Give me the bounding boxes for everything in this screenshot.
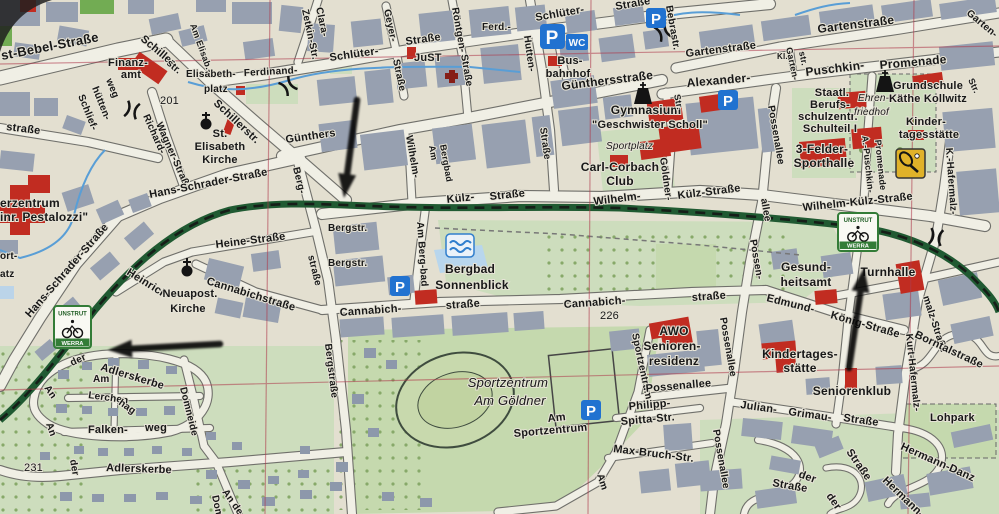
map-label: Turnhalle [861,265,916,279]
cycle-route-sign: UNSTRUT WERRA [838,213,878,251]
map-label: Gymnasium [611,103,682,117]
map-label: Carl-Corbach [581,160,659,174]
map-label: Bergbad [445,262,495,276]
map-label: Finanz- [108,57,148,69]
map-label: Sportzentrum [468,375,548,390]
map-label: JuST [414,52,442,64]
map-label: Ferd.- [482,22,511,33]
map-label: straße [691,290,726,304]
map-label: residenz [649,354,699,368]
map-label: 231 [24,462,43,474]
map-label: "Geschwister Scholl" [592,119,708,131]
map-label: Staatl. [815,87,849,99]
map-label: erzentrum [0,196,60,210]
map-label: Neuapost. [163,288,218,300]
map-label: Club [606,174,633,188]
svg-text:P: P [395,279,405,296]
map-label: Senioren- [643,339,700,353]
map-label: Kirche [170,303,205,315]
map-label: weg [144,422,167,434]
map-label: Bergstr. [328,258,367,269]
parking-icon: P [646,8,666,28]
map-label: heitsamt [781,275,832,289]
map-label: tagesstätte [899,129,959,141]
svg-text:P: P [723,93,733,110]
map-label: Gesund- [781,260,831,274]
map-label: 226 [600,310,619,322]
map-label: Ehren- [858,93,890,104]
map-label: Grundschule [893,80,963,92]
map-label: Bus- [557,55,582,67]
map-label: 201 [160,95,179,107]
church-icon [201,112,212,130]
map-label: AWO [659,324,688,338]
map-label: friedhof [854,107,890,118]
map-label: straße [445,298,480,312]
map-label: Kirche [202,154,237,166]
parking-label: P [546,28,559,49]
cycle-route-sign: UNSTRUT WERRA [54,306,91,348]
map-label: schulzentr. [798,111,858,123]
map-label: Sporthalle [794,156,855,170]
city-map-photo: P WC P P P P UNSTRUT [0,0,999,514]
route-sign-top-label: UNSTRUT [58,312,87,318]
map-label: Käthe Kollwitz [889,93,967,105]
map-label: platz [204,84,228,95]
map-label: Falken- [88,424,128,436]
wc-label: WC [569,38,586,49]
map-label: stätte [783,361,816,375]
map-label: amt [121,69,141,81]
map-label: Elisabeth [195,141,246,153]
parking-icon: P [581,400,601,420]
map-label: Am [93,374,110,385]
map-label: Am Göldner [473,393,546,408]
map-label: Seniorenklub [813,384,891,398]
svg-text:P: P [651,11,661,28]
map-label: atz [0,269,15,280]
svg-text:P: P [586,403,596,420]
route-sign-bottom-label: WERRA [847,244,870,250]
parking-icon: P [718,90,738,110]
map-label: ort- [0,251,17,262]
map-label: St. [213,128,228,140]
map-label: Kinder- [906,116,946,128]
parking-icon: P [390,276,410,296]
route-sign-bottom-label: WERRA [62,341,85,347]
route-sign-top-label: UNSTRUT [844,218,873,224]
map-label: Schulteil I [803,123,857,135]
map-label: Kindertages- [762,347,838,361]
map-label: Lohpark [930,412,975,424]
map-label: Sonnenblick [435,278,509,292]
map-label: Sportplatz [606,141,653,152]
map-label: 3-Felder- [796,142,848,156]
map-label: inr. Pestalozzi" [0,210,88,224]
map-label: Adlerskerbe [106,462,172,476]
map-label: Bergstr. [328,223,367,234]
tennis-icon [896,149,925,178]
map-label: Berufs- [810,99,850,111]
